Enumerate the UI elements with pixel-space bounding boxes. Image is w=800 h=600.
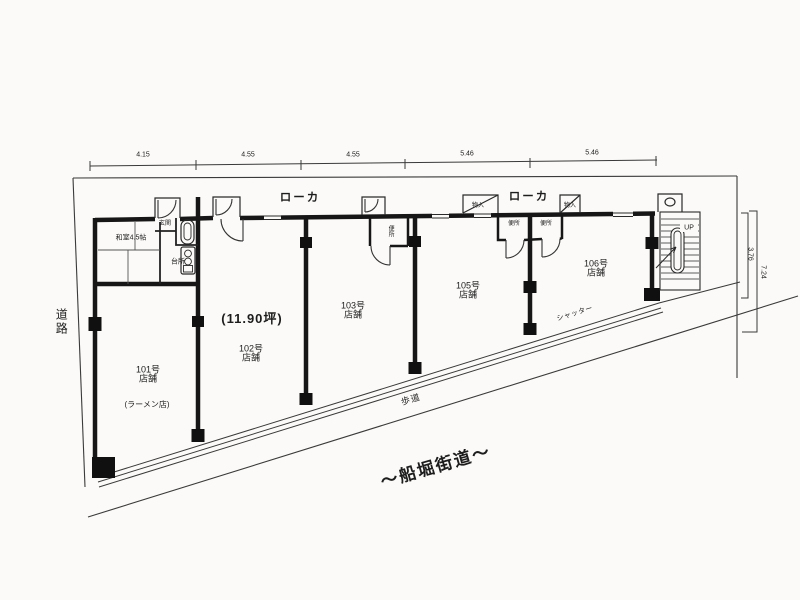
right-dimension-label-1: 3.76 [746,247,753,261]
entrance-label: 玄関 [159,221,171,227]
right-dimension-label-2: 7.24 [759,265,766,279]
top-dimension-label-1: 4.15 [136,151,150,158]
unit-102-label: 102号 店舗 [239,345,263,364]
unit-105-label: 105号 店舗 [456,282,480,301]
corridor-label-left: ローカ [280,192,321,204]
storefront-shutter-track [98,282,740,487]
unit-101-note: (ラーメン店) [124,401,169,409]
tatami-lines [98,222,160,284]
stairs-up-label: UP [684,224,694,231]
unit-106-type: 店舗 [587,269,605,278]
unit-101-type: 店舗 [139,375,157,384]
toilet-106-label: 便所 [540,221,552,227]
wall-anchor-blocks [89,236,661,478]
corridor-label-right: ローカ [509,191,550,203]
storage-105-label: 物入 [472,203,484,209]
toilet-room-walls [370,214,562,246]
exterior-and-corridor-walls [93,213,655,476]
unit-101-label: 101号 店舗 [136,366,160,385]
unit-105-type: 店舗 [459,291,477,300]
top-dimension-label-5: 5.46 [585,149,599,156]
top-dimension-label-3: 4.55 [346,151,360,158]
floor-plan-drawing [0,0,800,600]
top-dimension-label-2: 4.55 [241,151,255,158]
top-dimension-label-4: 5.46 [460,150,474,157]
unit-103-type: 店舗 [344,311,362,320]
floor-plan-canvas: 4.15 4.55 4.55 5.46 5.46 3.76 7.24 ローカ ロ… [0,0,800,600]
unit-103-label: 103号 店舗 [341,302,365,321]
door-swings [158,199,560,265]
unit-106-label: 106号 店舗 [584,260,608,279]
unit-102-type: 店舗 [242,354,260,363]
bath-kitchen-fixtures [181,220,195,274]
toilet-103-label: 便所 [387,225,393,237]
unit-102-area: (11.90坪) [221,312,282,326]
toilet-105-label: 便所 [508,221,520,227]
top-dimension-line [90,156,657,171]
kitchen-label: 台所 [171,258,185,265]
storage-106-label: 物入 [564,203,576,209]
side-road-label: 道路 [55,308,68,336]
right-dimension-brackets [741,211,757,332]
washitsu-label: 和室4.5帖 [116,234,147,241]
